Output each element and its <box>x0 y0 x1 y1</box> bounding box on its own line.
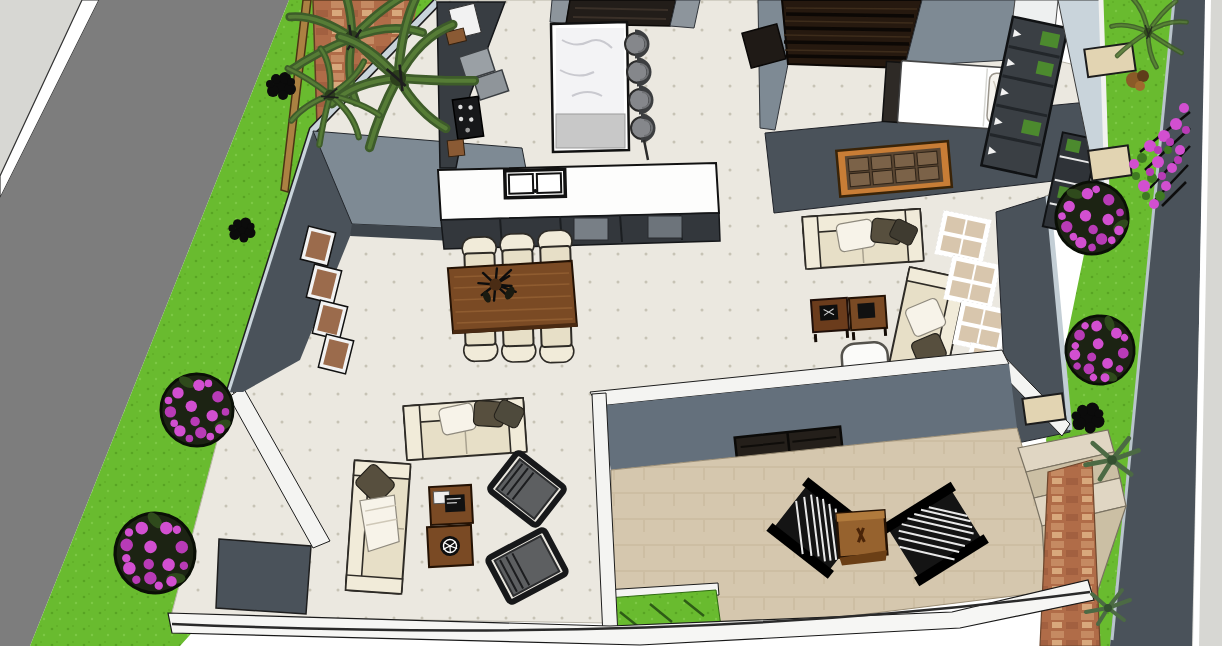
patio-side-table <box>836 510 888 565</box>
render-canvas <box>0 0 1222 646</box>
dining-area <box>447 230 579 366</box>
3d-house-render-viewport <box>0 0 1222 646</box>
stepping-stone <box>1022 393 1065 424</box>
stepping-stone <box>1088 145 1132 180</box>
bar-stool <box>625 32 647 56</box>
window <box>944 255 1000 308</box>
island-base <box>556 114 625 148</box>
bedroom-ceiling-slats <box>782 0 922 68</box>
coffee-table <box>427 525 473 567</box>
bar-stool <box>627 60 649 84</box>
stove <box>452 96 483 139</box>
throw-pillow <box>836 219 876 253</box>
wall-corner-block <box>216 539 311 614</box>
sofa <box>403 397 528 460</box>
flower-topiary <box>161 374 233 446</box>
bedroom-north-wall <box>905 0 1015 66</box>
brick-path-right <box>1040 460 1100 646</box>
bar-stool <box>631 116 653 140</box>
sofa <box>346 460 411 594</box>
bar-stool <box>629 88 651 112</box>
kitchen-sink-counter <box>438 163 720 249</box>
sofa <box>802 209 923 269</box>
dining-table <box>448 261 577 333</box>
bedroom-wall-art <box>836 141 952 197</box>
window <box>935 210 991 263</box>
coffee-table <box>429 485 473 525</box>
kitchen-island <box>551 22 629 152</box>
